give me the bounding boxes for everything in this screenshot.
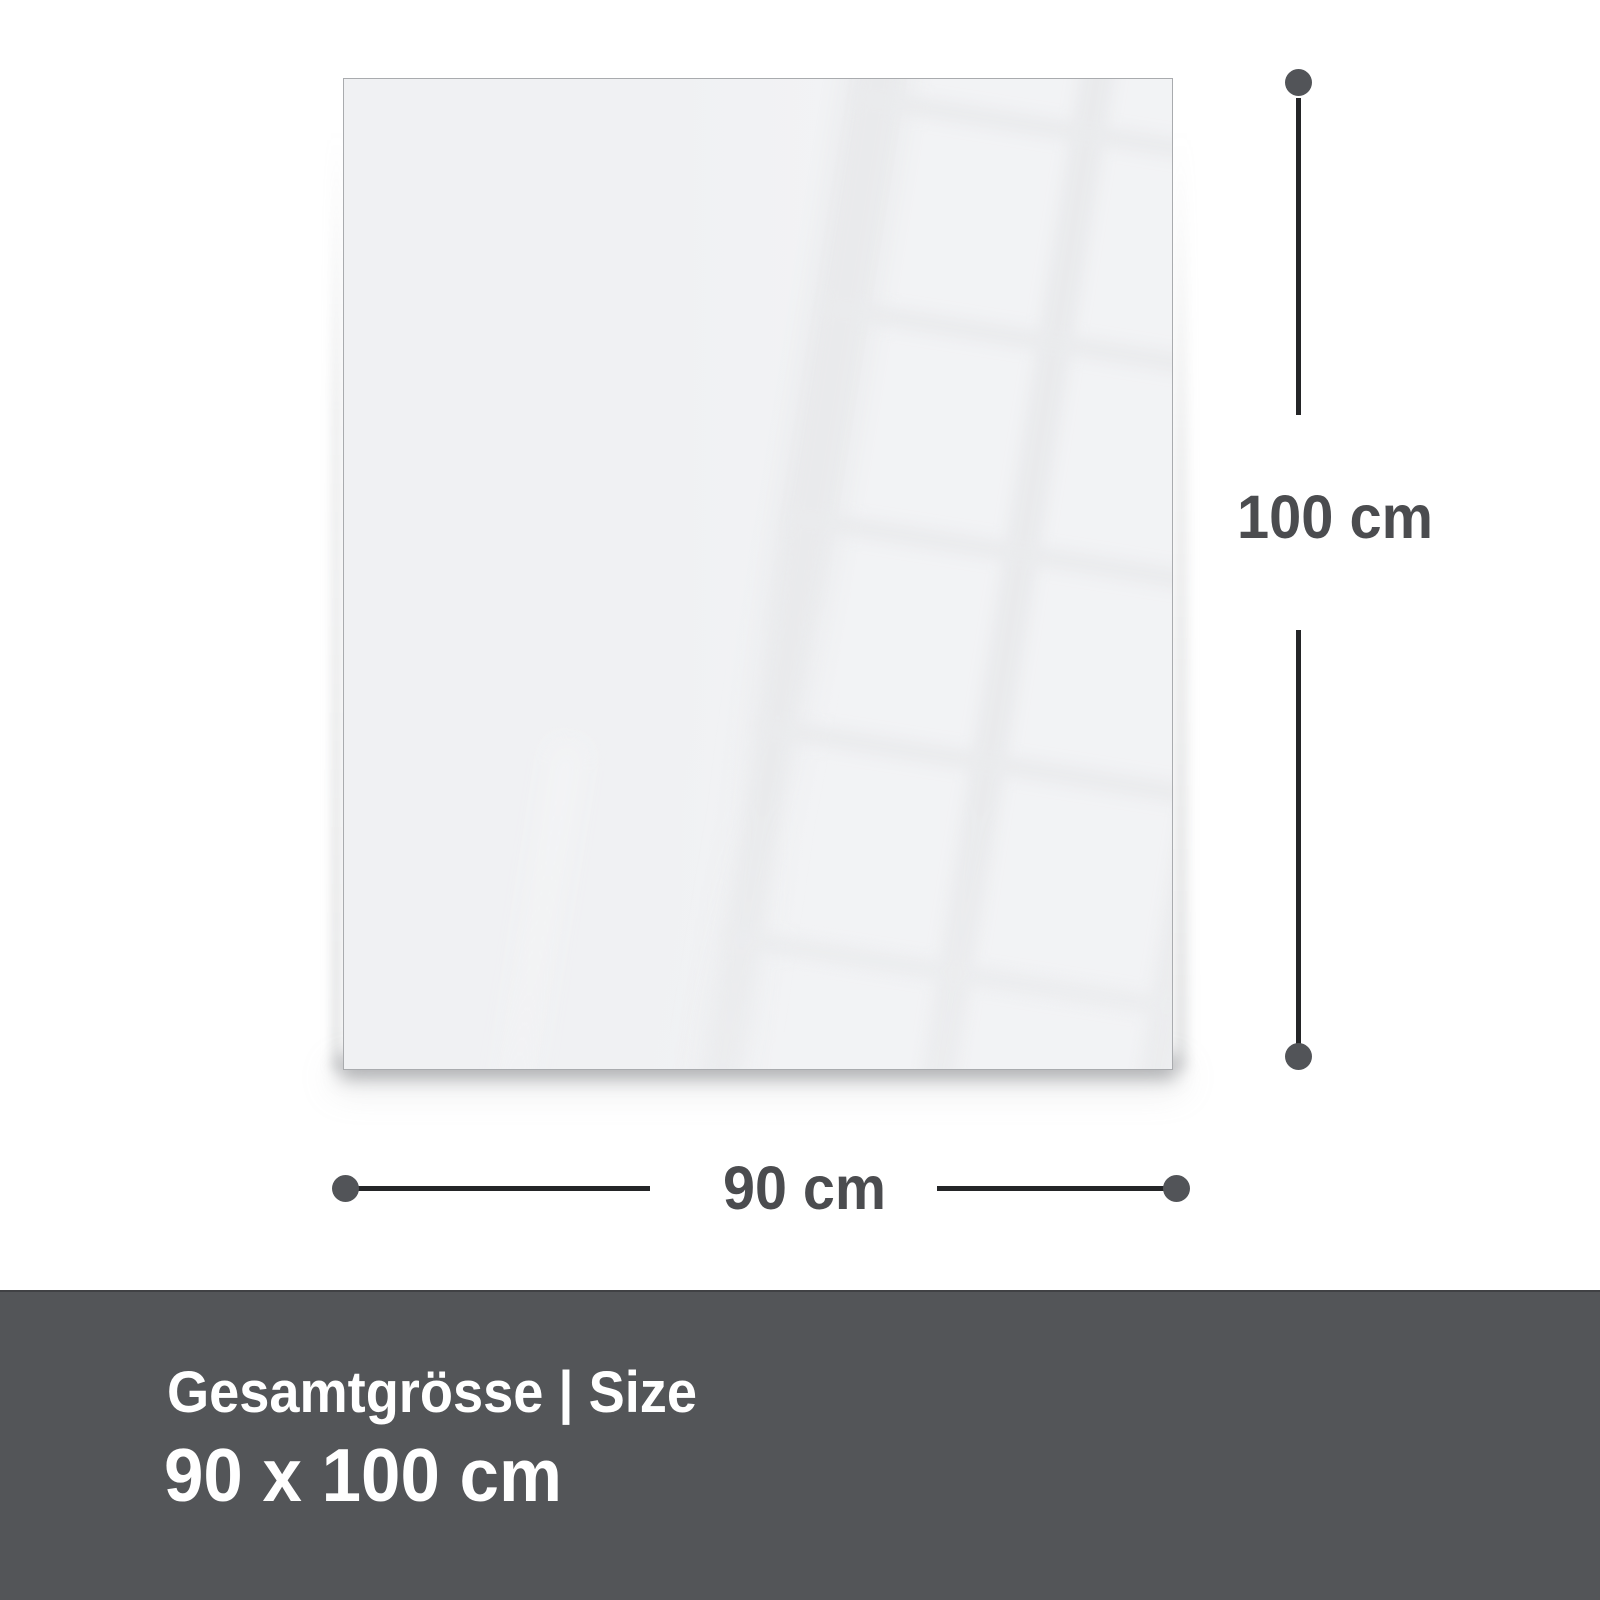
svg-text:90 cm: 90 cm xyxy=(723,1154,886,1222)
svg-text:100 cm: 100 cm xyxy=(1237,483,1433,551)
svg-text:90 x 100 cm: 90 x 100 cm xyxy=(164,1433,562,1517)
svg-text:Gesamtgrösse | Size: Gesamtgrösse | Size xyxy=(167,1360,697,1425)
